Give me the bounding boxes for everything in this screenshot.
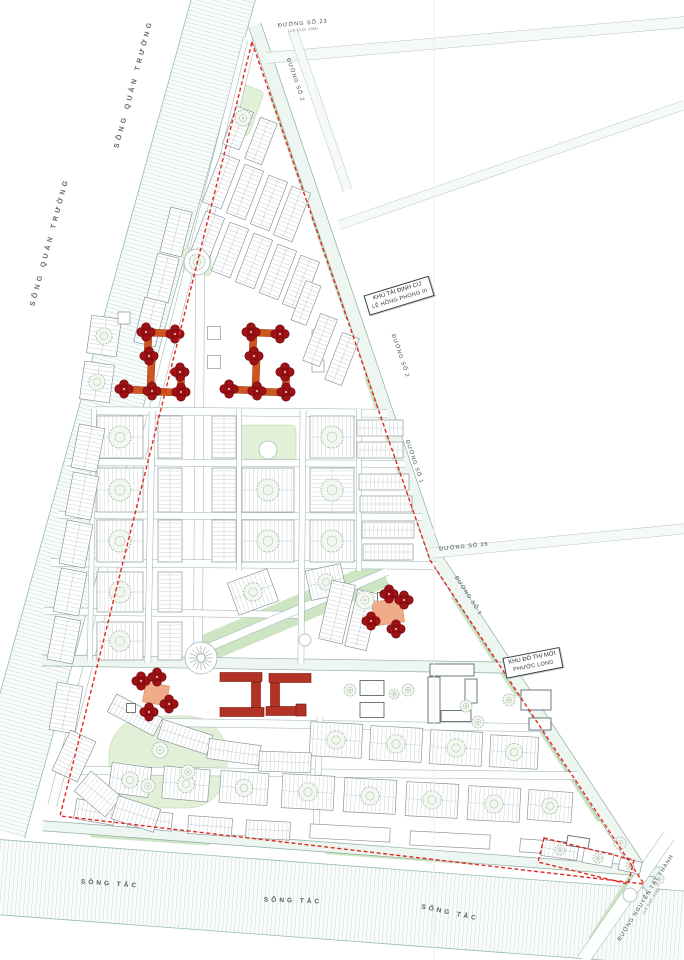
housing-block <box>359 474 409 490</box>
housing-block <box>343 778 397 815</box>
tree-icon <box>623 888 637 902</box>
tree-icon <box>356 591 374 609</box>
masterplan-page: SÔNG QUÁN TRƯỜNGSÔNG QUÁN TRƯỜNGSÔNG TẮC… <box>0 0 684 960</box>
tree-icon <box>109 426 131 448</box>
housing-block <box>259 751 312 773</box>
tree-icon <box>235 110 251 126</box>
housing-block <box>281 774 335 811</box>
housing-block <box>97 468 143 512</box>
tree-icon <box>321 426 343 448</box>
tree-icon <box>422 790 441 809</box>
housing-block <box>219 770 269 805</box>
tree-icon <box>181 765 195 779</box>
housing-block <box>158 572 182 612</box>
housing-block <box>208 356 221 369</box>
housing-block <box>362 522 414 538</box>
school-building <box>296 704 306 716</box>
tree-icon <box>446 738 465 757</box>
public-building-outline <box>521 690 551 710</box>
pond <box>259 441 277 459</box>
public-building-outline <box>465 679 477 703</box>
housing-block <box>429 730 483 767</box>
housing-block <box>242 520 294 562</box>
housing-block <box>87 315 122 357</box>
tree-icon <box>503 694 515 706</box>
public-building-outline <box>127 704 136 713</box>
housing-block <box>246 820 291 840</box>
tree-icon <box>555 845 565 855</box>
housing-block <box>405 782 459 819</box>
housing-block <box>363 544 413 560</box>
tree-icon <box>344 684 356 696</box>
housing-block <box>158 622 182 660</box>
road <box>67 459 404 468</box>
housing-block <box>527 790 573 823</box>
tree-icon <box>326 730 345 749</box>
public-building-outline <box>441 711 471 722</box>
tree-icon <box>460 700 472 712</box>
tree-icon <box>389 689 399 699</box>
housing-block <box>158 468 182 512</box>
tree-icon <box>654 874 664 884</box>
tree-icon <box>386 734 405 753</box>
housing-block <box>212 468 236 512</box>
tree-icon <box>109 581 131 603</box>
tree-icon <box>360 786 379 805</box>
tree-icon <box>321 530 343 552</box>
housing-block <box>158 416 182 458</box>
housing-block <box>310 416 354 458</box>
housing-block <box>158 520 182 562</box>
tree-icon <box>593 853 603 863</box>
roundabout-tree-icon <box>189 646 213 670</box>
tree-icon <box>298 782 317 801</box>
public-building-outline <box>430 664 474 676</box>
school-building <box>269 674 311 683</box>
housing-block <box>118 312 130 324</box>
housing-block <box>97 416 143 458</box>
tree-icon <box>109 530 131 552</box>
tree-icon <box>110 631 131 652</box>
tree-icon <box>109 479 131 501</box>
housing-block <box>212 520 236 562</box>
tree-icon <box>402 684 414 696</box>
tree-icon <box>299 634 311 646</box>
housing-block <box>97 572 143 612</box>
road <box>430 524 684 558</box>
housing-block <box>309 722 363 759</box>
tree-icon <box>257 479 279 501</box>
housing-block <box>369 726 423 763</box>
housing-block <box>80 361 115 403</box>
housing-block <box>467 786 521 823</box>
road <box>237 409 242 571</box>
housing-block <box>242 468 294 512</box>
tree-icon <box>152 742 168 758</box>
tree-icon <box>472 716 484 728</box>
housing-block <box>212 416 236 458</box>
public-building-outline <box>360 681 384 696</box>
housing-block <box>357 420 403 436</box>
tree-icon <box>484 794 503 813</box>
public-building-outline <box>360 703 384 718</box>
school-building <box>220 708 264 717</box>
city-plan-map <box>0 0 684 960</box>
housing-block <box>357 442 403 458</box>
housing-block <box>360 496 412 512</box>
housing-block <box>97 520 143 562</box>
housing-block <box>489 735 539 769</box>
tree-icon <box>321 479 343 501</box>
school-building <box>220 673 262 682</box>
housing-block <box>310 468 354 512</box>
road <box>338 101 684 230</box>
tree-icon <box>141 779 155 793</box>
housing-block <box>310 520 354 562</box>
tree-icon <box>257 530 279 552</box>
road <box>266 17 684 64</box>
housing-block <box>208 327 221 340</box>
public-building-outline <box>529 718 551 730</box>
